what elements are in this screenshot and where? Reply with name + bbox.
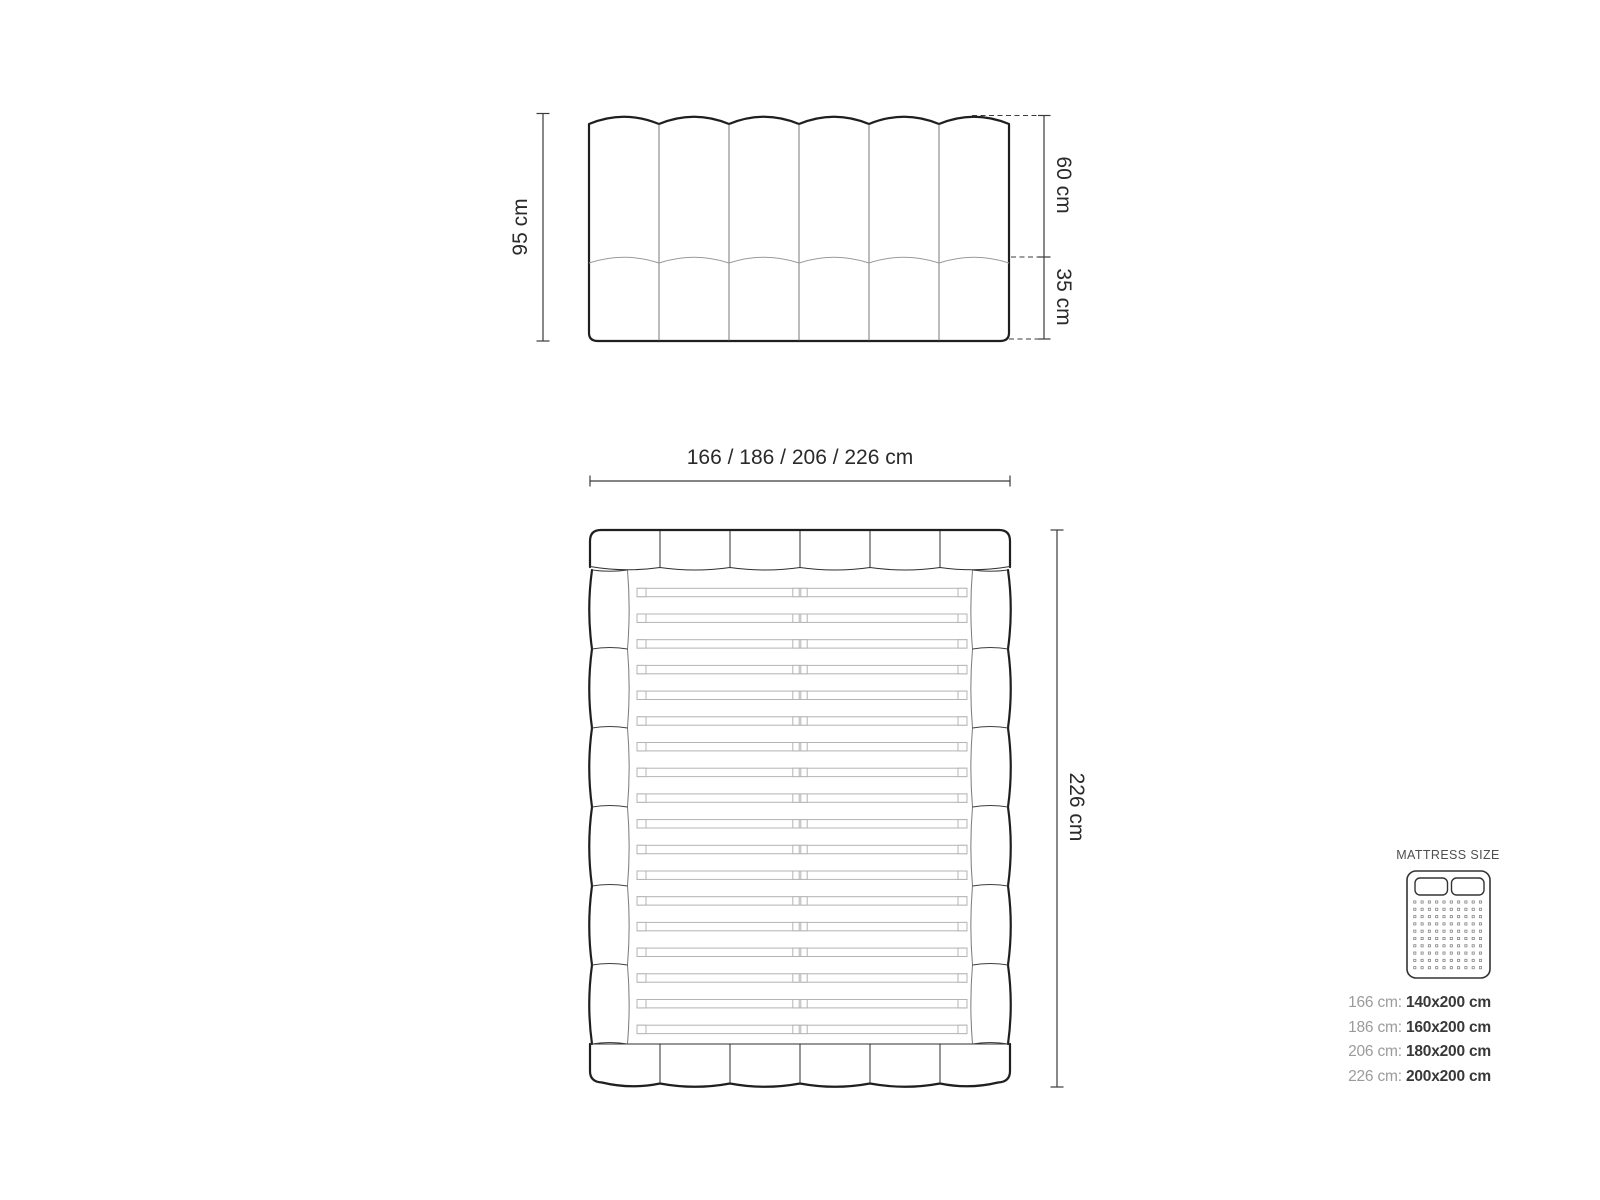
slat-end-cap — [637, 820, 646, 828]
side-cushion-divider — [973, 727, 1009, 729]
mattress-icon — [1407, 871, 1490, 978]
slat-centre-clip — [793, 948, 799, 956]
frame-size-label: 226 cm: — [1348, 1068, 1402, 1085]
right-side-cushions — [971, 570, 1011, 1044]
slat-end-cap — [637, 640, 646, 648]
side-cushion-divider — [973, 806, 1009, 808]
pillow-right-icon — [1452, 878, 1485, 895]
slat-grid — [637, 588, 967, 1033]
slat-end-cap — [637, 1000, 646, 1008]
slat-centre-clip — [793, 665, 799, 673]
frame-size-label: 206 cm: — [1348, 1043, 1402, 1060]
bed-width-label: 166 / 186 / 206 / 226 cm — [640, 445, 960, 471]
slat-end-cap — [637, 588, 646, 596]
slat-end-cap — [958, 588, 967, 596]
slat-end-cap — [958, 640, 967, 648]
slat-centre-clip — [793, 1025, 799, 1033]
slat-end-cap — [958, 614, 967, 622]
slat-end-cap — [637, 897, 646, 905]
head-rail-inner-edge — [590, 567, 1010, 571]
slat-end-cap — [958, 743, 967, 751]
slat-centre-clip — [801, 717, 807, 725]
mattress-size-value: 180x200 cm — [1406, 1043, 1491, 1060]
slat-end-cap — [637, 948, 646, 956]
slat-centre-clip — [793, 820, 799, 828]
slat-centre-clip — [793, 717, 799, 725]
slat-centre-clip — [793, 922, 799, 930]
side-cushion-inner-edge — [628, 570, 630, 1044]
mattress-size-row: 166 cm: 140x200 cm — [1300, 991, 1491, 1016]
slat-centre-clip — [793, 897, 799, 905]
slat-end-cap — [958, 922, 967, 930]
side-cushion-inner-edge — [971, 570, 973, 1044]
mattress-size-table: 166 cm: 140x200 cm 186 cm: 160x200 cm 20… — [1300, 991, 1491, 1089]
slat-end-cap — [958, 794, 967, 802]
slat-centre-clip — [801, 948, 807, 956]
slat-centre-clip — [801, 922, 807, 930]
side-cushion-divider — [973, 885, 1009, 887]
slat-end-cap — [958, 845, 967, 853]
slat-end-cap — [958, 871, 967, 879]
slat-end-cap — [958, 1025, 967, 1033]
side-cushion-divider — [592, 727, 628, 729]
side-cushion-divider — [973, 570, 1009, 571]
bed-top-view — [589, 530, 1011, 1087]
slat-end-cap — [958, 691, 967, 699]
slat-centre-clip — [793, 640, 799, 648]
slat-end-cap — [958, 820, 967, 828]
side-cushion-divider — [592, 885, 628, 887]
side-cushion-divider — [592, 964, 628, 966]
mattress-size-row: 186 cm: 160x200 cm — [1300, 1016, 1491, 1041]
slat-end-cap — [958, 768, 967, 776]
slat-centre-clip — [801, 691, 807, 699]
side-cushion-outer-edge — [589, 570, 592, 1044]
slat-end-cap — [637, 768, 646, 776]
mattress-size-row: 226 cm: 200x200 cm — [1300, 1065, 1491, 1090]
side-cushion-divider — [973, 648, 1009, 650]
slat-end-cap — [958, 948, 967, 956]
side-cushion-divider — [592, 570, 628, 571]
slat-centre-clip — [801, 768, 807, 776]
slat-centre-clip — [801, 1025, 807, 1033]
slat-centre-clip — [793, 691, 799, 699]
slat-centre-clip — [793, 845, 799, 853]
slat-end-cap — [958, 717, 967, 725]
slat-centre-clip — [793, 1000, 799, 1008]
slat-end-cap — [637, 743, 646, 751]
slat-end-cap — [958, 974, 967, 982]
headboard-lower-section-label: 35 cm — [1050, 252, 1076, 342]
slat-centre-clip — [793, 743, 799, 751]
mattress-size-value: 200x200 cm — [1406, 1068, 1491, 1085]
slat-centre-clip — [801, 974, 807, 982]
slat-centre-clip — [801, 640, 807, 648]
slat-end-cap — [637, 922, 646, 930]
mattress-size-row: 206 cm: 180x200 cm — [1300, 1040, 1491, 1065]
slat-centre-clip — [801, 845, 807, 853]
mattress-size-value: 160x200 cm — [1406, 1019, 1491, 1036]
slat-centre-clip — [793, 794, 799, 802]
frame-size-label: 186 cm: — [1348, 1019, 1402, 1036]
slat-end-cap — [637, 614, 646, 622]
side-cushion-divider — [592, 648, 628, 650]
pillow-left-icon — [1415, 878, 1448, 895]
side-cushion-outer-edge — [1008, 570, 1011, 1044]
mattress-size-value: 140x200 cm — [1406, 994, 1491, 1011]
slat-end-cap — [637, 845, 646, 853]
slat-centre-clip — [801, 665, 807, 673]
headboard-front-view — [589, 117, 1009, 341]
bed-dimension-diagram: 95 cm 60 cm 35 cm 166 / 186 / 206 / 226 … — [0, 0, 1600, 1200]
slat-end-cap — [637, 871, 646, 879]
slat-centre-clip — [793, 974, 799, 982]
slat-centre-clip — [801, 743, 807, 751]
slat-end-cap — [637, 717, 646, 725]
slat-end-cap — [637, 1025, 646, 1033]
slat-end-cap — [958, 1000, 967, 1008]
slat-centre-clip — [793, 614, 799, 622]
slat-centre-clip — [801, 897, 807, 905]
slat-centre-clip — [801, 794, 807, 802]
bed-length-label: 226 cm — [1063, 762, 1089, 852]
mattress-size-title: MATTRESS SIZE — [1348, 848, 1548, 865]
slat-centre-clip — [801, 1000, 807, 1008]
slat-centre-clip — [801, 871, 807, 879]
headboard-upper-section-label: 60 cm — [1050, 140, 1076, 230]
slat-centre-clip — [801, 614, 807, 622]
slat-end-cap — [958, 897, 967, 905]
frame-size-label: 166 cm: — [1348, 994, 1402, 1011]
slat-centre-clip — [801, 588, 807, 596]
slat-centre-clip — [801, 820, 807, 828]
slat-centre-clip — [793, 768, 799, 776]
left-side-cushions — [589, 570, 629, 1044]
slat-end-cap — [637, 974, 646, 982]
headboard-height-label: 95 cm — [508, 182, 534, 272]
side-cushion-divider — [973, 964, 1009, 966]
slat-centre-clip — [793, 871, 799, 879]
side-cushion-divider — [592, 806, 628, 808]
slat-end-cap — [637, 665, 646, 673]
slat-centre-clip — [793, 588, 799, 596]
slat-end-cap — [637, 691, 646, 699]
slat-end-cap — [958, 665, 967, 673]
slat-end-cap — [637, 794, 646, 802]
